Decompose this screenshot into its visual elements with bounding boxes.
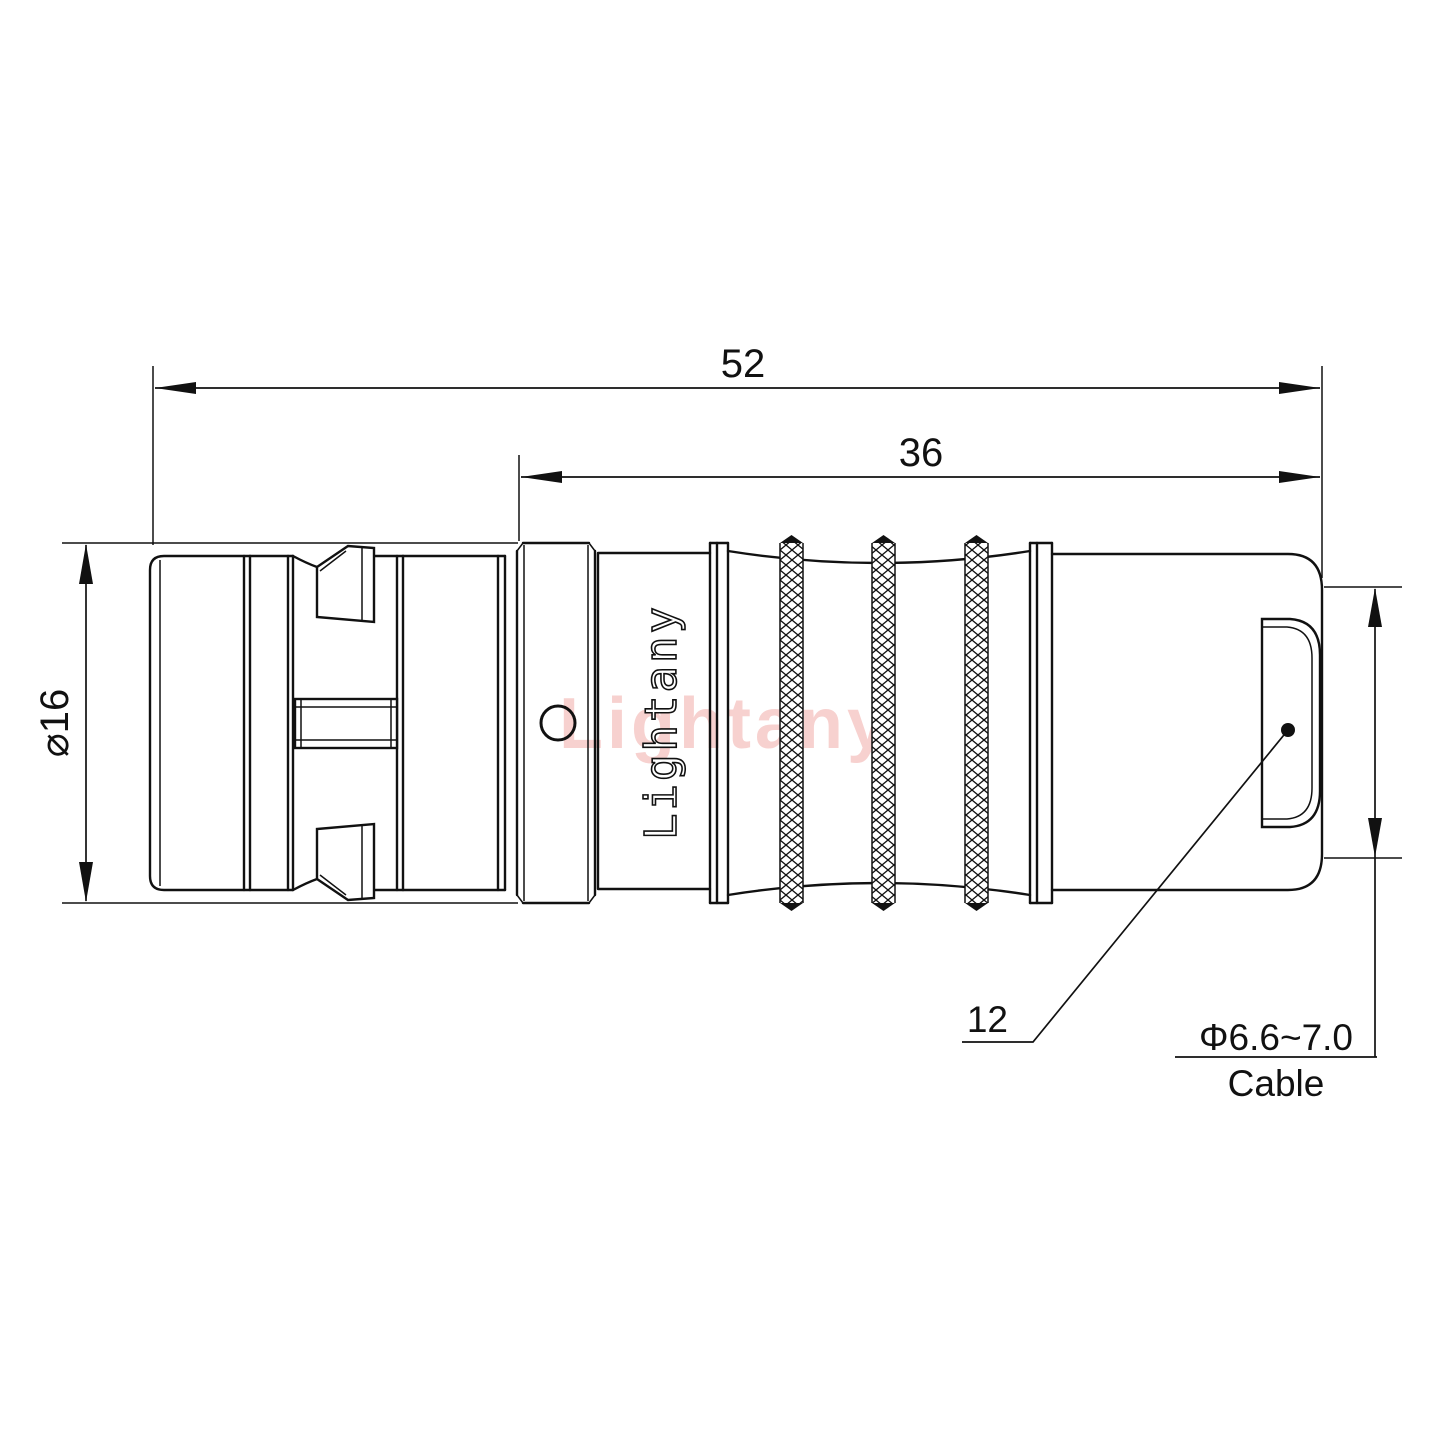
latch-section	[293, 546, 403, 900]
knurl-ring-3	[965, 535, 988, 911]
cable-spec-label: Φ6.6~7.0	[1199, 1017, 1353, 1058]
dim-rear-length: 36	[519, 431, 1320, 541]
barrel-section	[403, 556, 505, 890]
connector-drawing: Lightany	[0, 0, 1440, 1440]
drawing-canvas: Lightany	[0, 0, 1440, 1440]
latch-tab-bottom	[317, 824, 374, 900]
leader-rear-nut-12: 12	[962, 730, 1288, 1042]
cable-bushing	[1262, 619, 1320, 827]
dim-label-52: 52	[721, 342, 766, 386]
cable-word-label: Cable	[1228, 1063, 1325, 1104]
sleeve-engraving: Lightany	[636, 604, 687, 840]
dim-label-dia16: ⌀16	[33, 689, 77, 758]
watermark-text: Lightany	[559, 684, 891, 764]
front-cap	[150, 556, 250, 890]
dim-label-36: 36	[899, 431, 944, 475]
knurl-ring-2	[872, 535, 895, 911]
latch-slot	[295, 699, 397, 748]
rear-nut	[1052, 554, 1322, 890]
knurl-ring-1	[780, 535, 803, 911]
dim-label-12: 12	[967, 999, 1008, 1040]
dim-body-diameter: ⌀16	[33, 543, 518, 903]
front-ring	[250, 556, 293, 890]
latch-tab-top	[317, 546, 374, 622]
